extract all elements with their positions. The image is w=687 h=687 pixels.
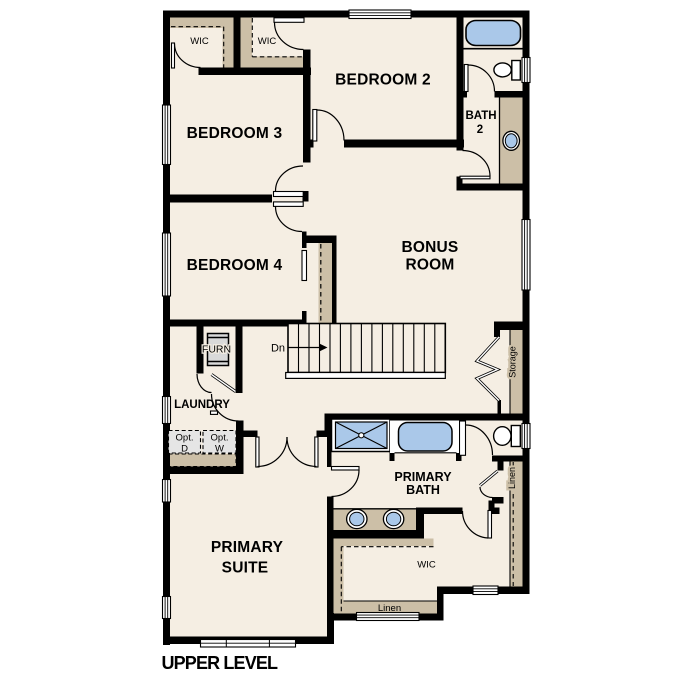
svg-text:PRIMARY: PRIMARY	[394, 470, 452, 484]
svg-text:BEDROOM 4: BEDROOM 4	[187, 257, 283, 274]
svg-text:PRIMARY: PRIMARY	[211, 539, 284, 556]
svg-text:WIC: WIC	[258, 36, 277, 47]
svg-text:Storage: Storage	[508, 346, 518, 378]
svg-text:Linen: Linen	[378, 603, 401, 614]
svg-text:BATH: BATH	[465, 110, 496, 122]
svg-text:Dn: Dn	[271, 343, 285, 355]
svg-text:BEDROOM 2: BEDROOM 2	[335, 71, 431, 88]
svg-text:WIC: WIC	[190, 36, 209, 47]
svg-text:SUITE: SUITE	[222, 559, 269, 576]
svg-text:BATH: BATH	[406, 483, 440, 497]
svg-text:FURN: FURN	[202, 344, 231, 356]
svg-text:Opt.: Opt.	[211, 433, 229, 444]
svg-text:LAUNDRY: LAUNDRY	[174, 399, 230, 411]
svg-text:W: W	[215, 444, 224, 455]
svg-text:D: D	[181, 444, 188, 455]
svg-text:Linen: Linen	[507, 467, 517, 489]
svg-text:BONUS: BONUS	[402, 239, 459, 256]
svg-text:ROOM: ROOM	[405, 256, 454, 273]
svg-text:2: 2	[477, 124, 483, 136]
svg-text:WIC: WIC	[417, 560, 436, 571]
svg-text:Opt.: Opt.	[176, 433, 194, 444]
svg-text:BEDROOM 3: BEDROOM 3	[187, 125, 283, 142]
svg-text:UPPER LEVEL: UPPER LEVEL	[162, 653, 279, 673]
